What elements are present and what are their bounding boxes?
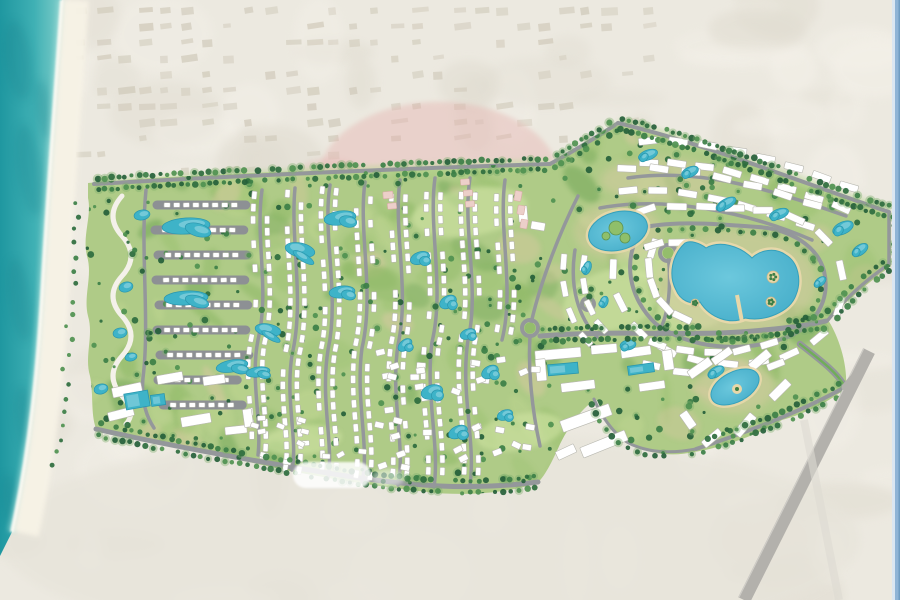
- page-border-right: [892, 0, 900, 600]
- masterplan-map-screenshot: [0, 0, 900, 600]
- masterplan-map: [0, 0, 900, 600]
